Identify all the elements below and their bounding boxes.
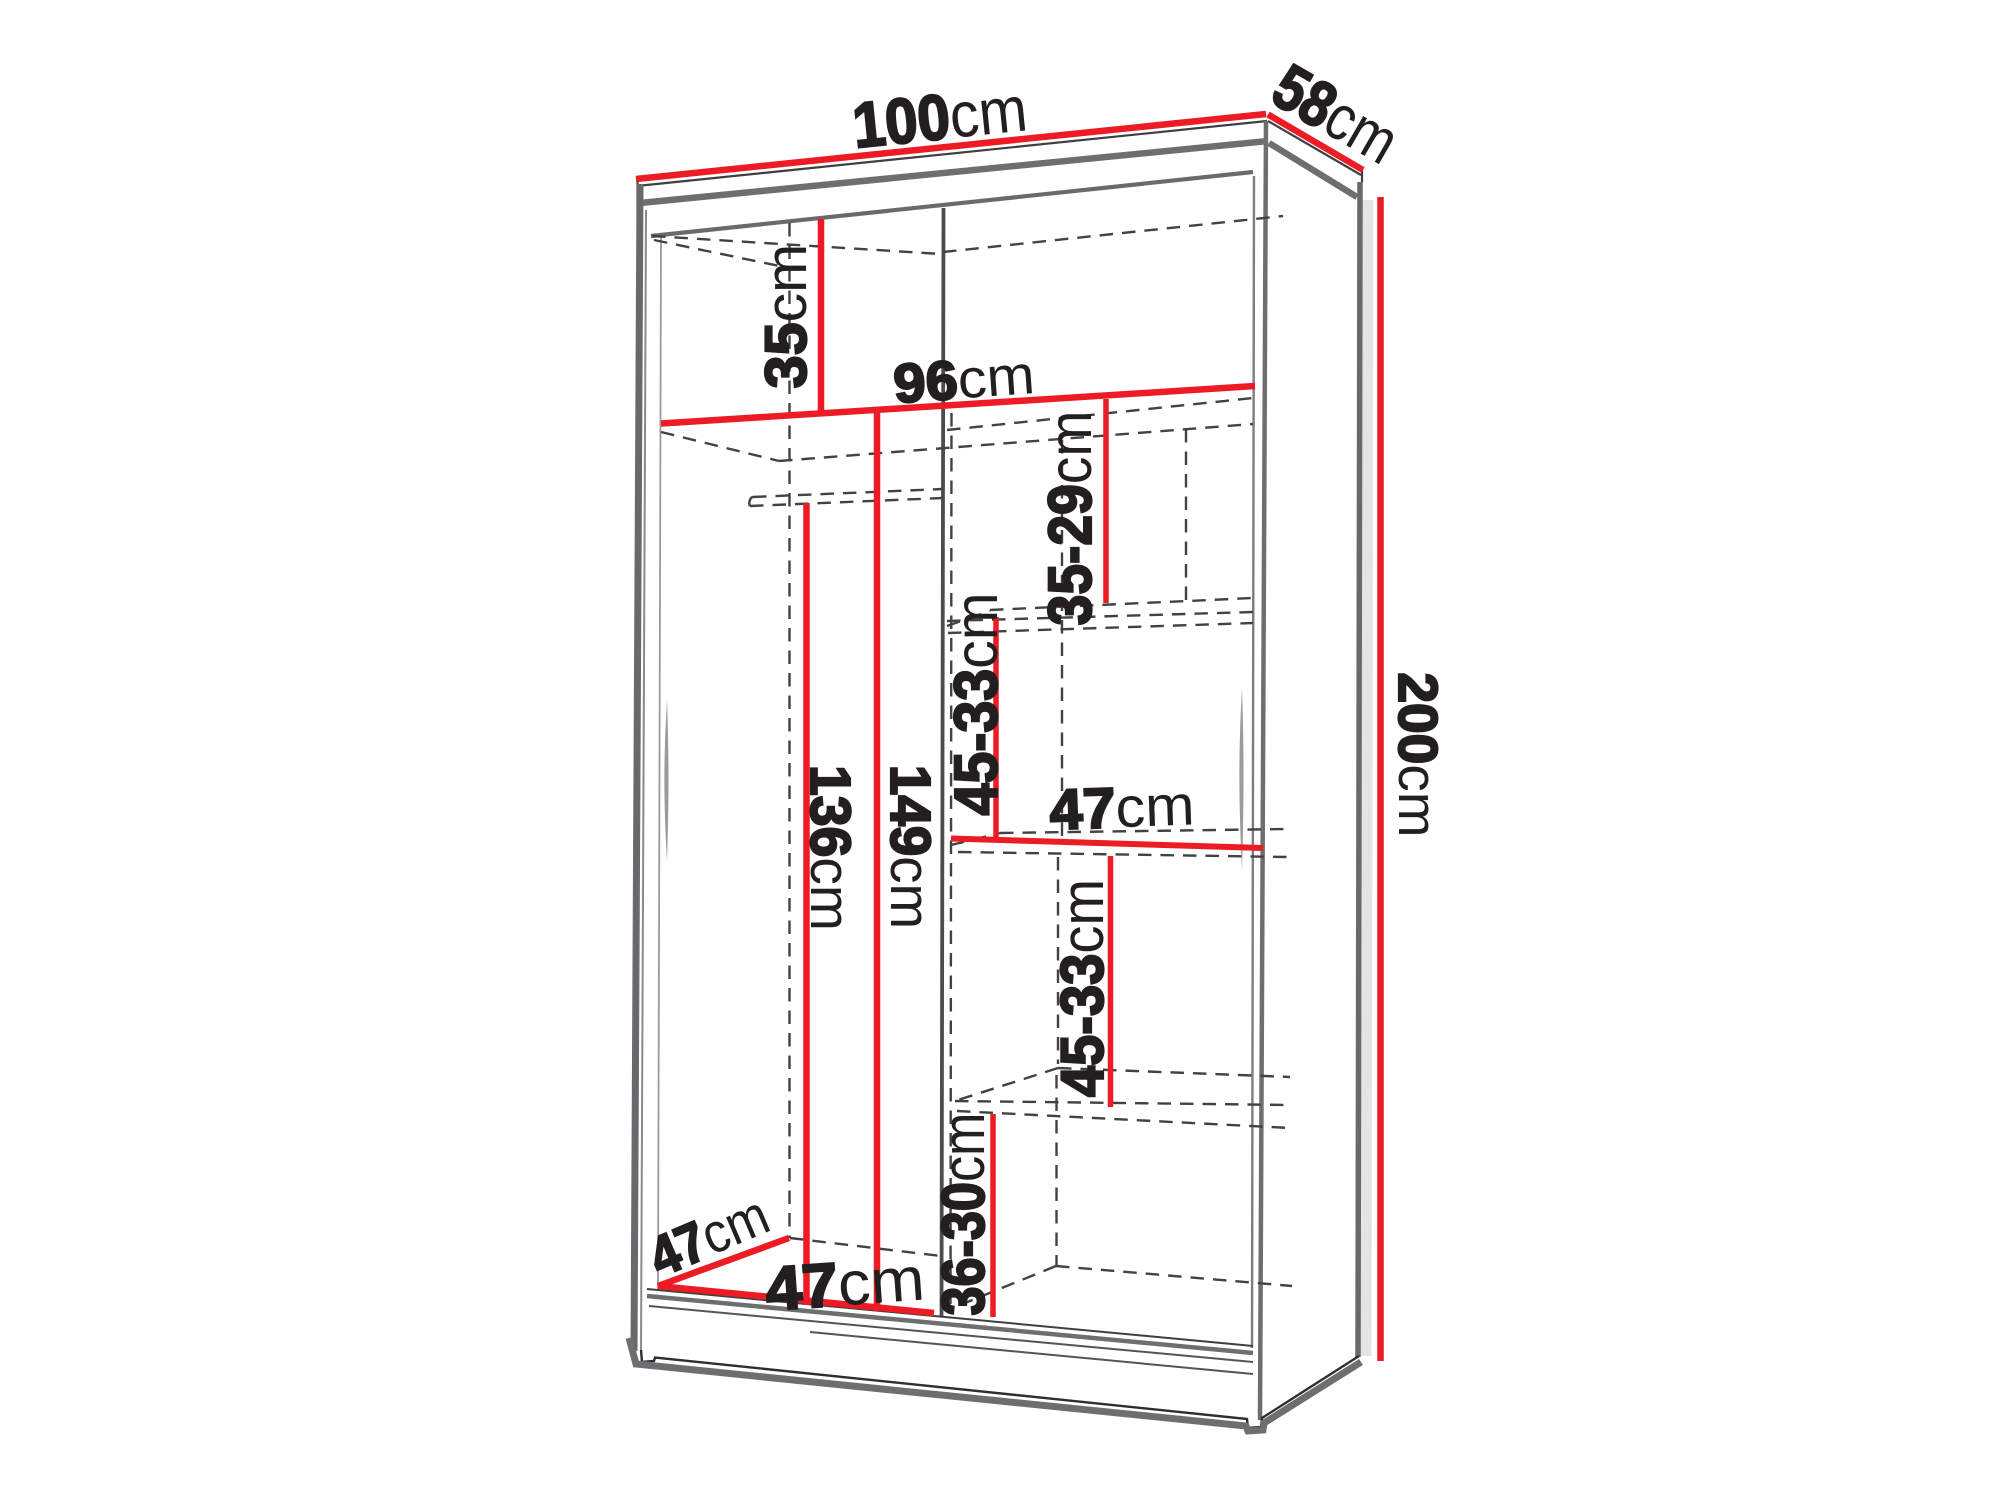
svg-text:47cm: 47cm xyxy=(1048,774,1195,843)
svg-text:45-33cm: 45-33cm xyxy=(941,592,1010,815)
svg-text:36-30cm: 36-30cm xyxy=(930,1112,997,1315)
svg-text:136cm: 136cm xyxy=(799,765,863,931)
svg-text:58cm: 58cm xyxy=(1261,50,1411,179)
svg-text:45-33cm: 45-33cm xyxy=(1049,879,1116,1097)
svg-text:47cm: 47cm xyxy=(640,1184,778,1289)
svg-text:35cm: 35cm xyxy=(755,244,819,389)
svg-text:96cm: 96cm xyxy=(891,343,1036,414)
svg-text:47cm: 47cm xyxy=(763,1244,927,1324)
svg-text:35-29cm: 35-29cm xyxy=(1036,411,1104,626)
svg-text:200cm: 200cm xyxy=(1387,672,1449,837)
svg-text:149cm: 149cm xyxy=(879,765,943,929)
